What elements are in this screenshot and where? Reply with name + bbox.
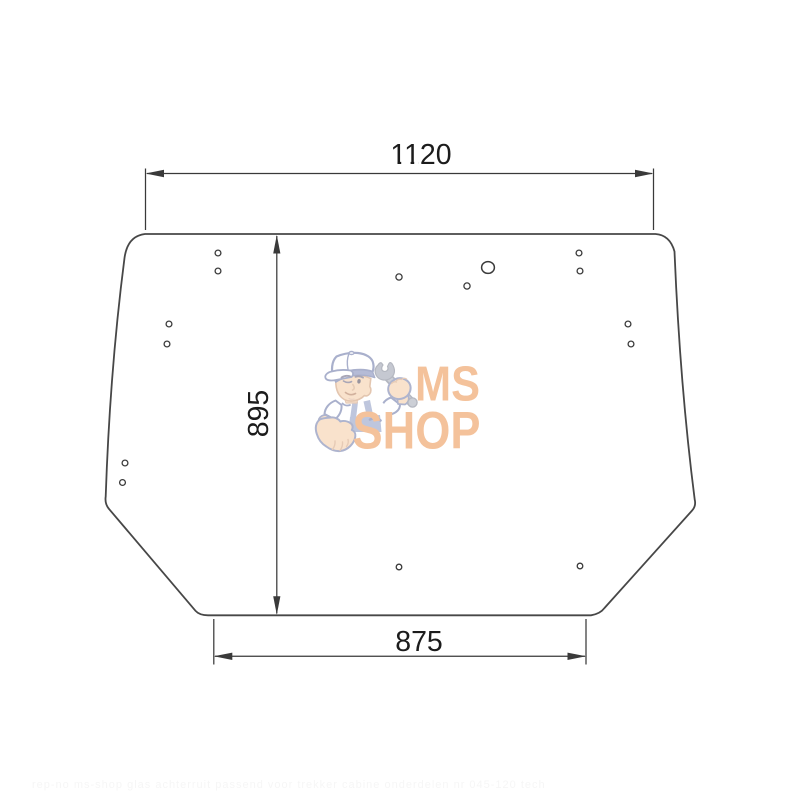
svg-text:rep-no ms-shop glas achterruit: rep-no ms-shop glas achterruit passend v… <box>32 779 546 791</box>
svg-text:895: 895 <box>243 390 275 438</box>
svg-text:875: 875 <box>395 626 443 658</box>
svg-text:1120: 1120 <box>390 139 451 171</box>
svg-text:SHOP: SHOP <box>353 402 481 461</box>
